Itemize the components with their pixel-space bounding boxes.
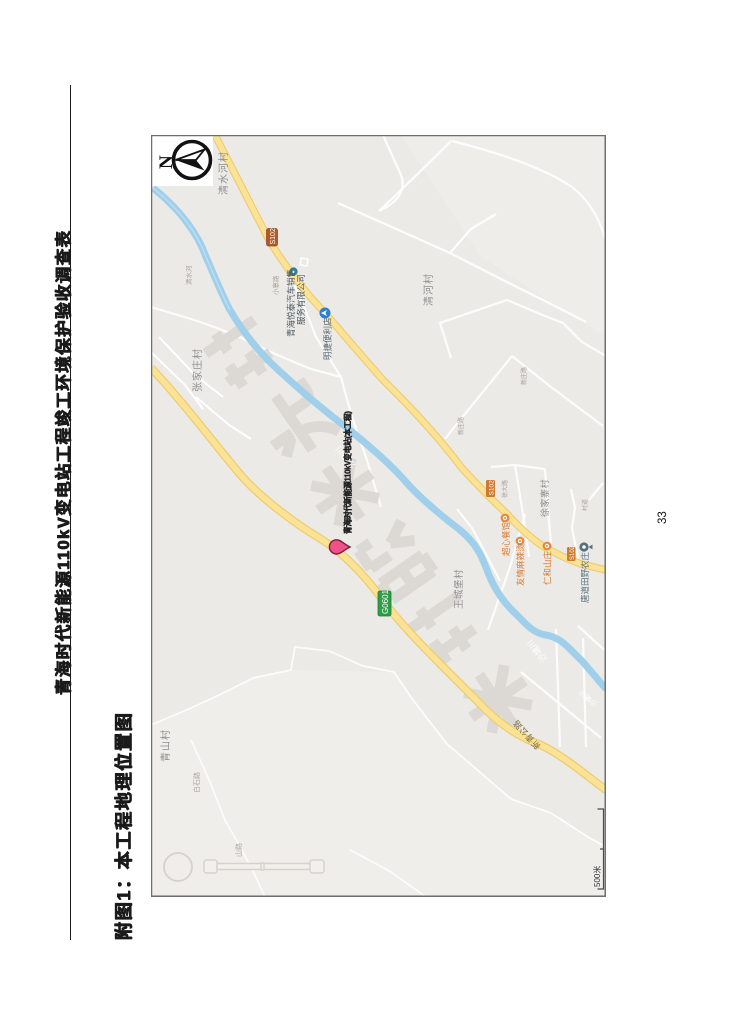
svg-text:青海悦泰汽车销售: 青海悦泰汽车销售 [286,269,296,337]
svg-text:山路: 山路 [234,843,243,857]
svg-text:G0601: G0601 [381,589,390,614]
svg-text:服务有限公司: 服务有限公司 [296,274,306,325]
svg-text:张家庄村: 张家庄村 [191,348,204,392]
svg-text:仁和山庄: 仁和山庄 [543,550,553,585]
svg-text:清水河: 清水河 [184,265,193,285]
svg-text:青山村: 青山村 [159,729,172,762]
svg-text:白石路: 白石路 [192,772,201,793]
svg-text:S102: S102 [270,228,277,244]
svg-text:清河村: 清河村 [422,273,435,306]
svg-text:徐大路: 徐大路 [501,480,509,498]
svg-text:王城堡村: 王城堡村 [453,569,465,609]
svg-text:新庄路: 新庄路 [520,367,528,385]
svg-text:小寨路: 小寨路 [271,275,280,295]
svg-text:唐道田野农庄: 唐道田野农庄 [580,551,590,603]
svg-text:青海时代新能源110kV变电站(本工程): 青海时代新能源110kV变电站(本工程) [343,411,353,534]
svg-text:S102: S102 [570,545,576,560]
svg-text:村道: 村道 [581,499,589,511]
svg-text:新庄路: 新庄路 [457,417,465,435]
svg-text:500米: 500米 [592,866,602,887]
svg-text:超心餐馆: 超心餐馆 [501,522,511,556]
svg-text:徐家寨村: 徐家寨村 [539,479,550,517]
svg-text:友情麻辣烫: 友情麻辣烫 [516,543,526,586]
svg-text:明捷便利店: 明捷便利店 [323,317,333,360]
svg-text:清水河村: 清水河村 [217,151,230,195]
svg-text:S102: S102 [489,480,496,496]
